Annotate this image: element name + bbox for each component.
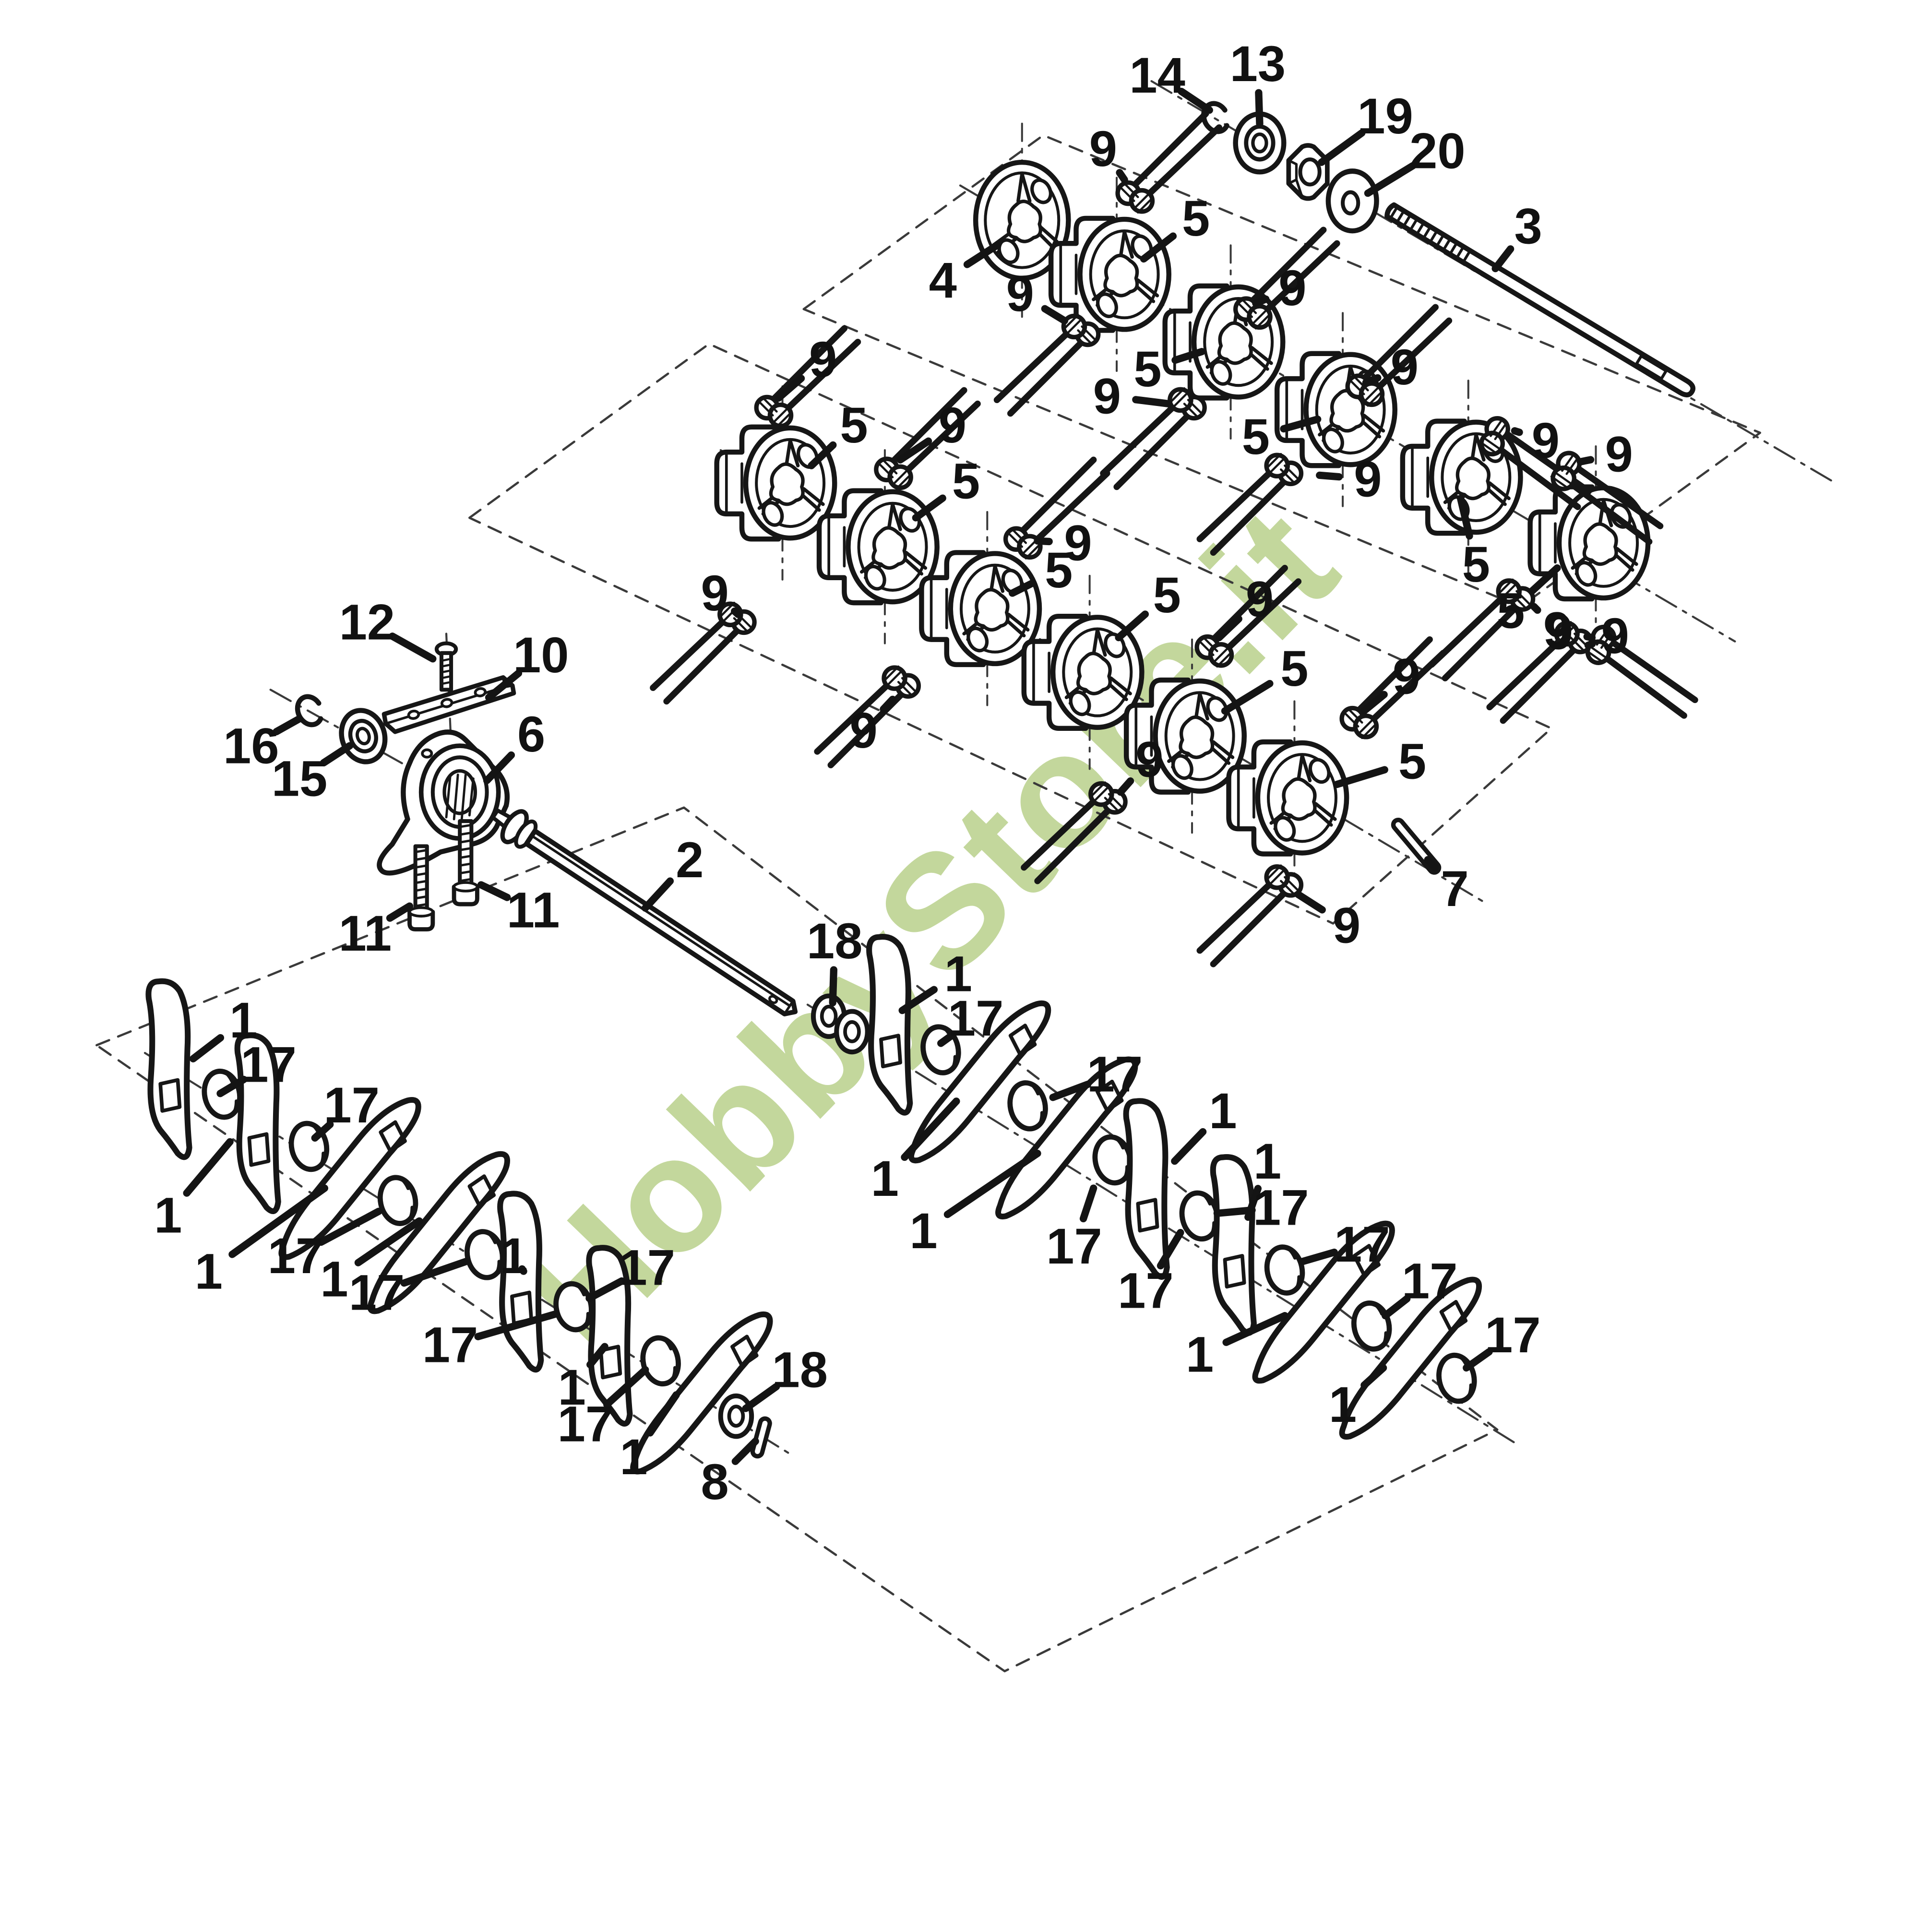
part-number-label: 17	[1253, 1180, 1309, 1236]
part-number-label: 18	[807, 913, 862, 969]
part-number-label: 1	[1329, 1377, 1357, 1433]
part-number-label: 13	[1230, 36, 1286, 92]
part-number-label: 1	[909, 1203, 937, 1259]
label-leader-line	[833, 970, 834, 1002]
part-number-label: 18	[772, 1342, 828, 1398]
part-number-label: 9	[1545, 604, 1573, 660]
nut19-part	[1288, 145, 1327, 199]
part-number-label: 11	[507, 882, 560, 938]
label-leader-line	[1298, 894, 1322, 910]
part-number-label: 9	[1391, 339, 1419, 395]
part-number-label: 1	[500, 1228, 528, 1284]
label-leader-line	[324, 746, 350, 763]
part-number-label: 9	[1605, 426, 1633, 482]
part-number-label: 9	[1089, 121, 1117, 177]
label-leader-line	[1256, 299, 1266, 303]
part-number-label: 12	[339, 595, 395, 651]
label-leader-line	[393, 636, 433, 659]
label-leader-line	[1320, 475, 1339, 477]
part-number-label: 5	[1182, 191, 1210, 247]
spacer-part	[376, 1174, 419, 1227]
hub-part	[921, 552, 1039, 665]
housing6-part	[379, 732, 507, 873]
part-number-label: 9	[1093, 369, 1121, 425]
label-leader-line	[735, 611, 738, 615]
hub-part	[1277, 354, 1395, 466]
part-number-label: 1	[871, 1151, 899, 1207]
part-number-label: 20	[1409, 123, 1465, 179]
washer-part	[721, 1396, 751, 1437]
part-number-label: 9	[1532, 413, 1560, 469]
part-number-label: 17	[1087, 1047, 1143, 1103]
part-number-label: 5	[1153, 567, 1181, 623]
part-number-label: 3	[1514, 198, 1542, 254]
part-number-label: 17	[240, 1037, 296, 1093]
washer20-part	[1328, 171, 1377, 231]
part-number-label: 5	[1462, 537, 1490, 593]
part-number-label: 9	[1354, 452, 1382, 508]
label-leader-line	[1175, 1132, 1203, 1161]
part-number-label: 10	[513, 627, 569, 683]
part-number-label: 9	[1135, 731, 1163, 787]
part-number-label: 14	[1129, 48, 1185, 104]
part-number-label: 4	[929, 252, 957, 309]
part-number-label: 5	[840, 397, 868, 453]
washer-part	[836, 1012, 867, 1052]
vblade-part	[148, 981, 189, 1157]
label-leader-line	[187, 1142, 230, 1193]
part-number-label: 1	[154, 1188, 182, 1244]
vblade-part	[1126, 1101, 1167, 1277]
part-number-label: 6	[517, 706, 545, 763]
label-leader-line	[193, 1038, 221, 1059]
exploded-parts-diagram: HobbyStore.it 14131920345555599999999995…	[0, 0, 1932, 1932]
part-number-label: 17	[619, 1240, 675, 1296]
part-number-label: 16	[223, 718, 279, 774]
part-number-label: 17	[1046, 1218, 1102, 1275]
part-number-label: 1	[620, 1429, 647, 1485]
tine-part	[1200, 866, 1301, 964]
label-leader-line	[1259, 93, 1260, 123]
part-number-label: 11	[339, 906, 392, 962]
part-number-label: 9	[1278, 260, 1306, 316]
part-number-label: 17	[268, 1228, 323, 1284]
part-number-label: 1	[1209, 1083, 1237, 1139]
spacer-part	[1006, 1079, 1049, 1133]
part-number-label: 17	[324, 1077, 380, 1133]
part-number-label: 9	[1064, 515, 1092, 572]
label-leader-line	[1515, 431, 1519, 432]
hub-part	[717, 427, 835, 539]
part-number-label: 15	[272, 751, 327, 807]
label-leader-line	[1366, 378, 1377, 382]
tine-part	[1583, 613, 1697, 730]
part-number-label: 5	[1242, 409, 1270, 465]
part-number-label: 9	[939, 397, 966, 453]
label-leader-line	[1302, 1252, 1335, 1262]
part-number-label: 2	[676, 832, 704, 888]
label-leader-line	[645, 881, 670, 908]
label-leader-line	[390, 906, 409, 918]
part-number-label: 5	[1280, 641, 1308, 697]
label-leader-line	[481, 885, 507, 897]
vblade-part	[1213, 1157, 1254, 1333]
part-number-label: 5	[1398, 733, 1426, 789]
label-leader-line	[276, 719, 299, 732]
label-leader-line	[1495, 249, 1511, 269]
pin8-part	[751, 1418, 771, 1457]
tine-part	[997, 315, 1098, 413]
part-number-label: 1	[320, 1251, 348, 1307]
screw12-part	[437, 644, 456, 690]
part-number-label: 1	[1186, 1326, 1214, 1383]
part-number-label: 17	[1402, 1253, 1457, 1309]
label-leader-line	[1580, 460, 1590, 462]
part-number-label: 9	[1246, 571, 1274, 627]
label-leader-line	[1038, 541, 1049, 541]
part-number-label: 9	[701, 565, 729, 621]
part-number-label: 9	[1333, 898, 1360, 954]
hub-part	[1229, 742, 1347, 854]
part-number-label: 9	[1601, 608, 1629, 664]
part-number-label: 9	[809, 332, 837, 388]
spacer-part	[1263, 1243, 1306, 1297]
label-leader-line	[1136, 400, 1169, 404]
part-number-label: 17	[1485, 1307, 1540, 1363]
part-number-label: 19	[1357, 88, 1413, 144]
label-leader-line	[1534, 607, 1538, 610]
label-leader-line	[1120, 173, 1124, 180]
part-number-label: 9	[1006, 266, 1034, 322]
part-number-label: 5	[1497, 583, 1525, 639]
part-number-label: 9	[1393, 648, 1420, 704]
part-number-label: 1	[195, 1243, 223, 1300]
part-number-label: 8	[701, 1454, 729, 1510]
part-number-label: 17	[1334, 1216, 1390, 1273]
label-leader-line	[1587, 637, 1592, 638]
part-number-label: 17	[422, 1317, 478, 1373]
part-number-label: 9	[850, 703, 878, 759]
label-leader-line	[1045, 309, 1064, 321]
label-leader-line	[1322, 133, 1362, 162]
part-number-labels: 1413192034555559999999999555555799999999…	[154, 36, 1633, 1510]
label-leader-line	[1084, 1188, 1094, 1218]
part-number-label: 5	[952, 453, 980, 510]
part-number-label: 17	[558, 1396, 613, 1452]
part-number-label: 7	[1441, 861, 1468, 917]
spacer-part	[639, 1334, 682, 1387]
label-leader-line	[1217, 1210, 1252, 1214]
part-number-label: 5	[1133, 341, 1161, 397]
label-leader-line	[1368, 166, 1412, 193]
label-leader-line	[1588, 644, 1592, 645]
part-number-label: 17	[349, 1265, 405, 1321]
part-number-label: 17	[1118, 1263, 1173, 1319]
part-number-label: 17	[948, 990, 1003, 1047]
